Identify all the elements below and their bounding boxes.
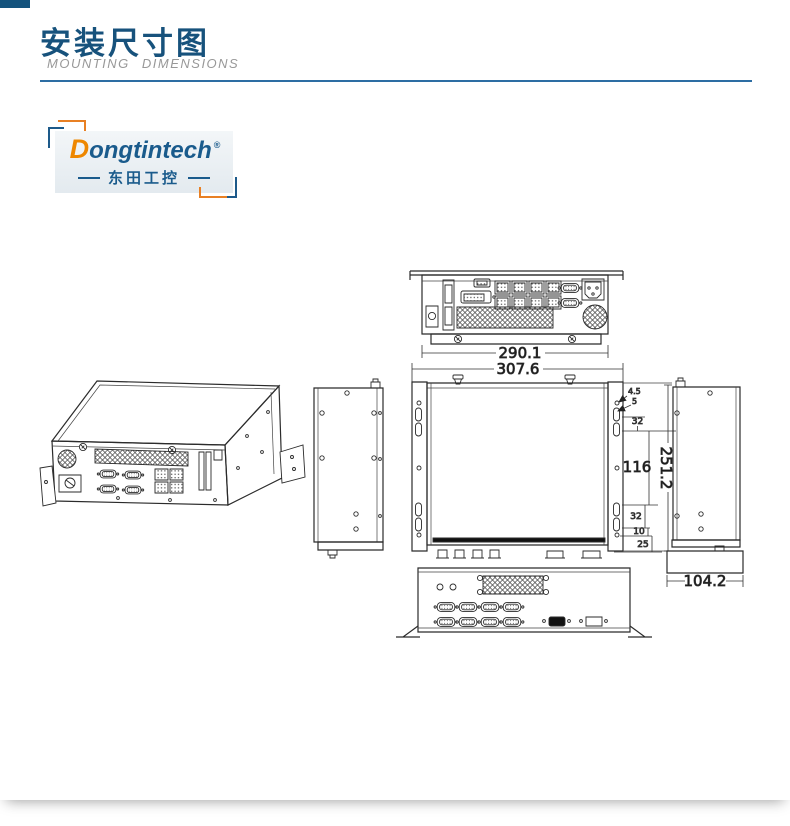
dim-label-mount-slot: 5 [632, 397, 637, 406]
usb-lan-ports [495, 281, 561, 309]
mesh-vent [95, 449, 188, 466]
dim-label-mid-span: 116 [623, 458, 652, 476]
dim-label-side-width: 104.2 [684, 572, 727, 590]
com-port [558, 299, 582, 308]
front-view [396, 568, 652, 637]
isometric-view [40, 381, 305, 506]
dim-label-overall-width: 307.6 [497, 360, 540, 378]
mounting-bracket-left [412, 382, 427, 551]
dimension-side-width: 104.2 [667, 572, 743, 590]
dim-label-edge-gap: 25 [637, 540, 648, 550]
dim-label-slot-pitch-top: 32 [632, 417, 643, 427]
round-vent [58, 450, 76, 468]
dim-label-hole-gap: 10 [633, 527, 645, 537]
mesh-vent [457, 307, 553, 328]
dimension-overall-width: 307.6 [412, 360, 623, 383]
serial-ports [434, 603, 524, 627]
top-view [412, 375, 623, 558]
led-indicator [450, 584, 456, 590]
rear-view [410, 271, 623, 344]
side-view-left [314, 379, 383, 558]
com-port [558, 284, 582, 293]
hdmi-port [549, 617, 565, 626]
front-connector-bumps [436, 550, 602, 558]
side-view-right [667, 378, 743, 573]
mesh-vent [483, 576, 543, 594]
dim-label-slot-pitch-bottom: 32 [630, 512, 641, 522]
mounting-ear-right [280, 445, 305, 483]
dim-label-mount-hole: 4.5 [628, 387, 641, 396]
vga-port [586, 617, 602, 626]
mounting-dimensions-drawing: 290.1 307.6 [0, 0, 790, 700]
led-indicator [437, 584, 443, 590]
dim-label-overall-depth: 251.2 [657, 447, 675, 490]
round-vent [583, 305, 607, 329]
page-card: 安装尺寸图 MOUNTING DIMENSIONS Dongtintech® 东… [0, 0, 790, 800]
thumb-screw [79, 443, 86, 450]
power-switch [426, 306, 438, 327]
bracket-profile [667, 551, 743, 573]
